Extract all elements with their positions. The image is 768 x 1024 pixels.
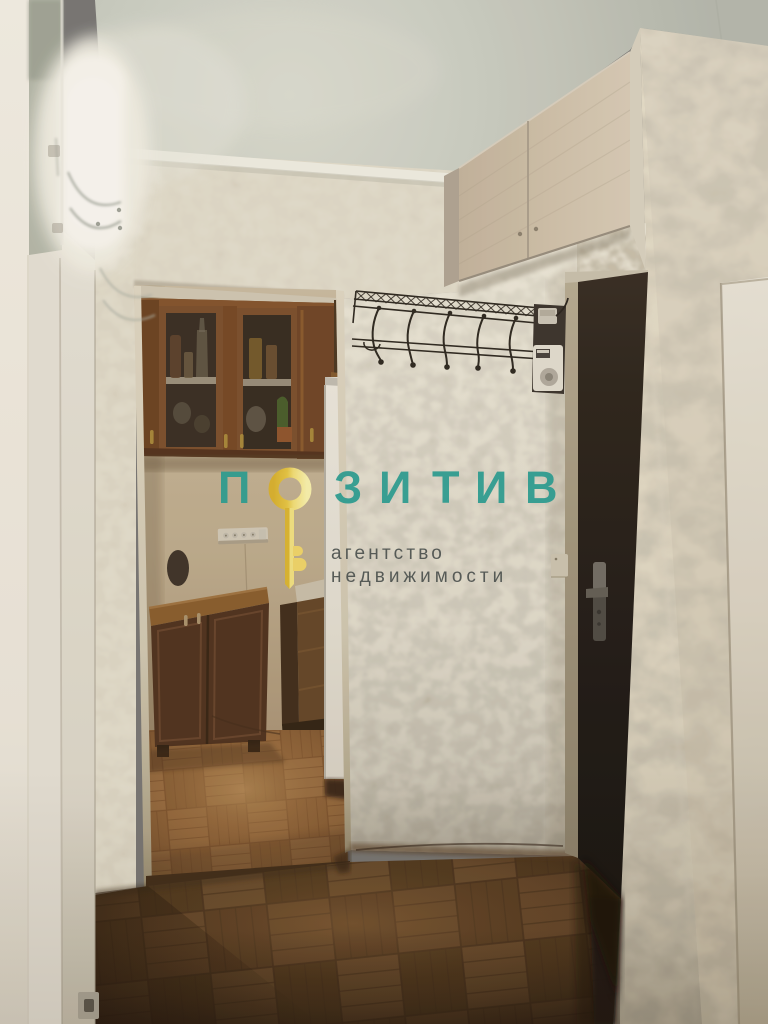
svg-text:недвижимости: недвижимости bbox=[331, 566, 507, 587]
svg-text:Т: Т bbox=[432, 462, 460, 513]
svg-text:И: И bbox=[475, 462, 507, 513]
svg-text:П: П bbox=[218, 462, 250, 513]
svg-text:агентство: агентство bbox=[331, 543, 445, 564]
svg-text:И: И bbox=[379, 462, 411, 513]
svg-text:З: З bbox=[334, 462, 362, 513]
svg-text:В: В bbox=[525, 462, 558, 513]
